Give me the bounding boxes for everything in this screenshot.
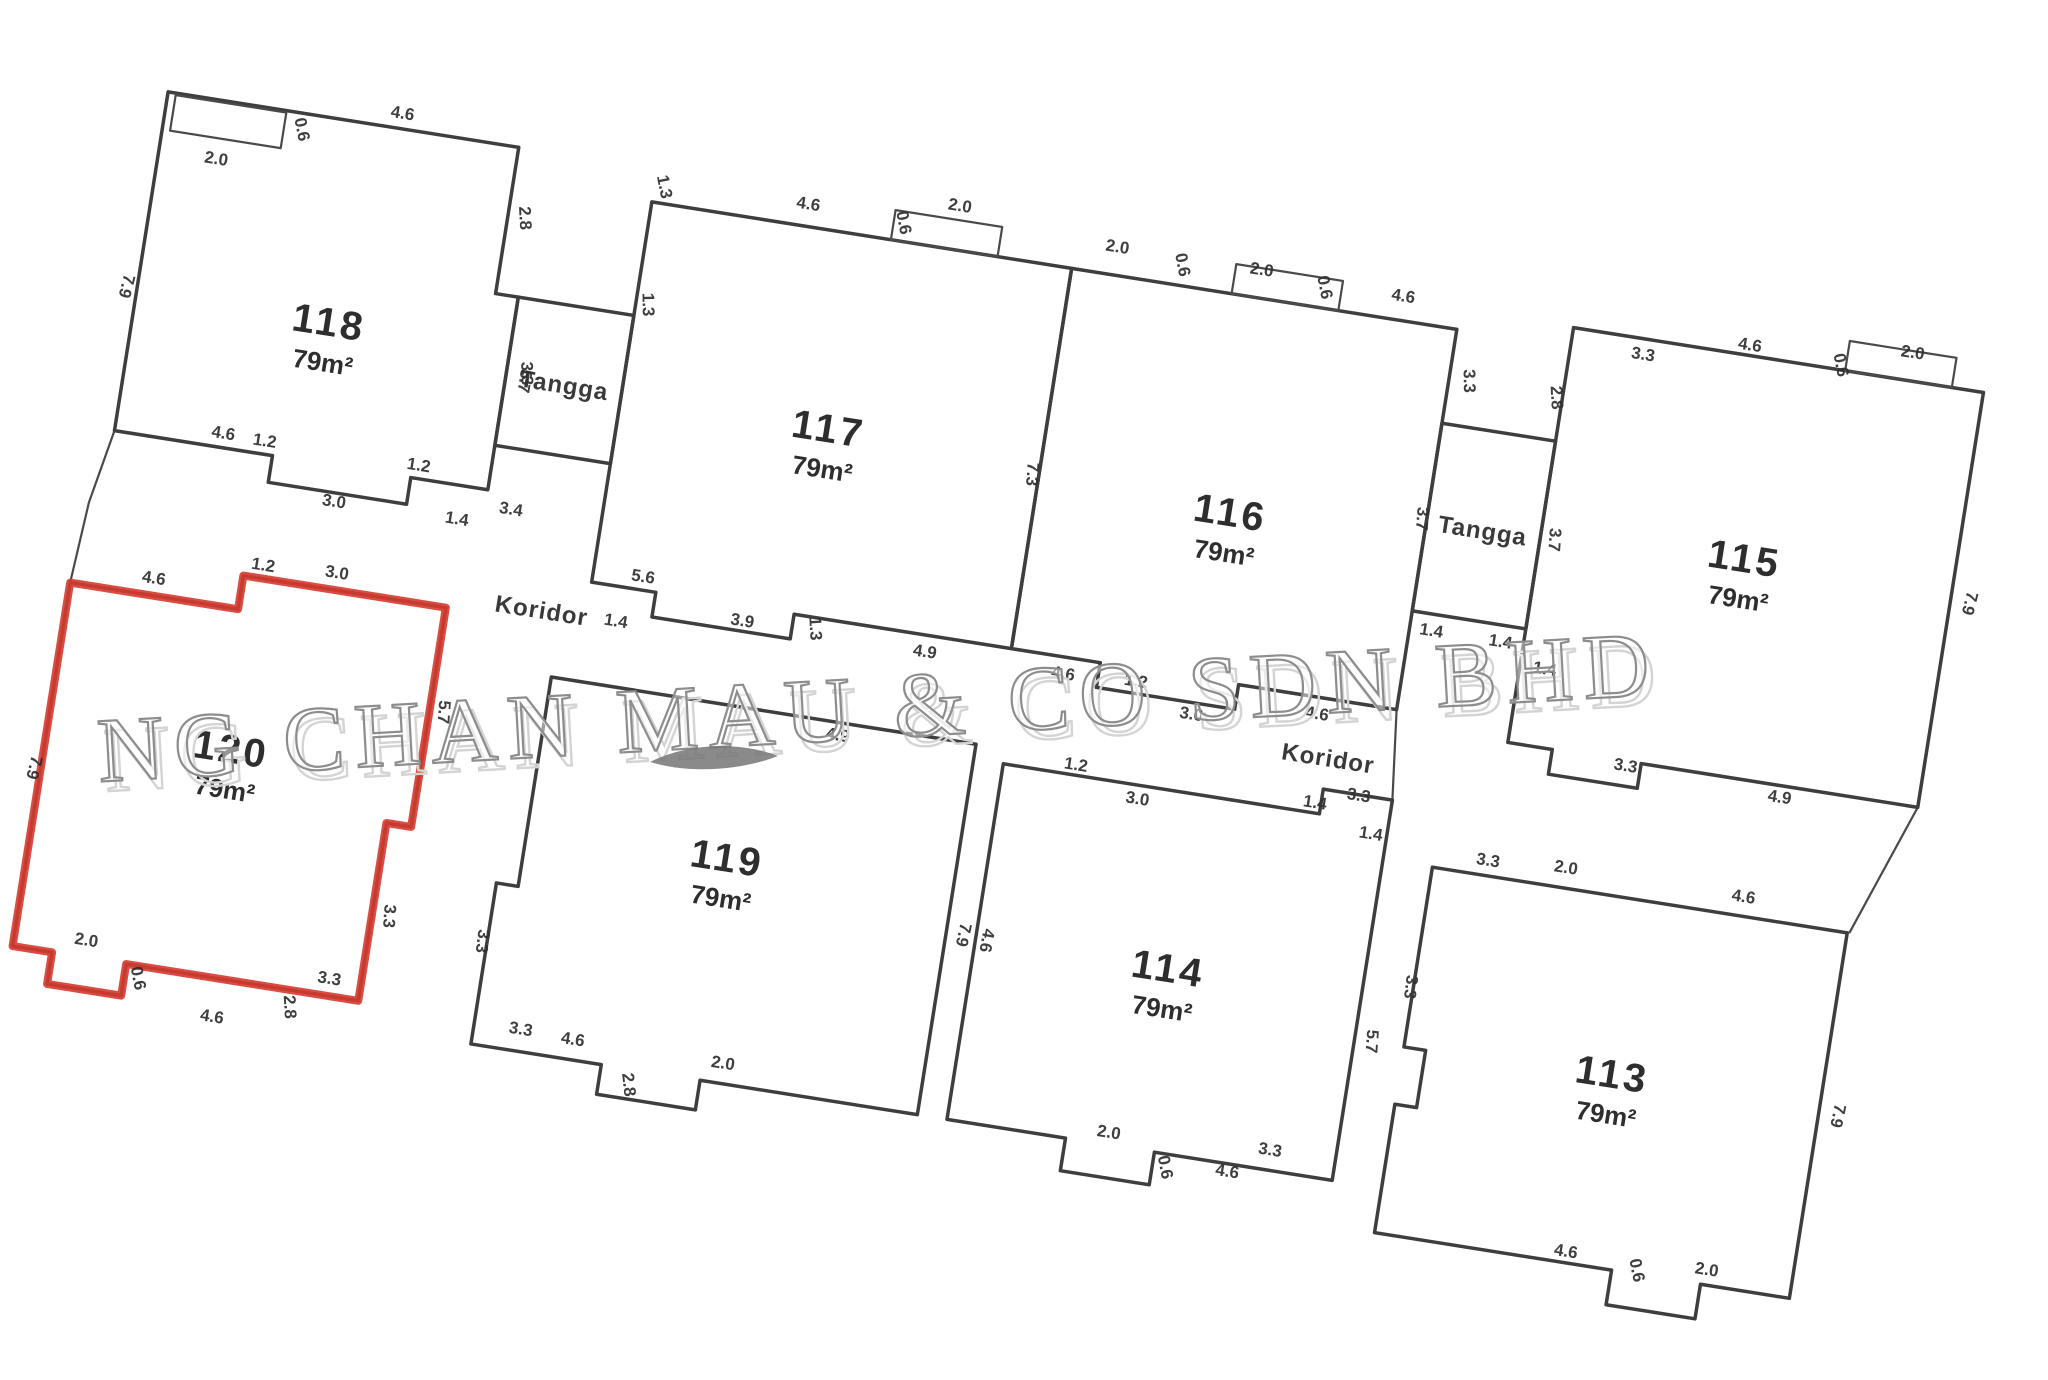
dimension-label: 5.7	[1362, 1029, 1383, 1054]
dimension-label: 1.4	[444, 508, 471, 531]
dimension-label: 2.0	[1900, 341, 1926, 363]
dimension-label: 3.0	[1124, 787, 1150, 809]
dimension-label: 1.2	[252, 430, 278, 452]
dimension-label: 3.3	[316, 967, 342, 989]
dimension-label: 2.8	[280, 995, 300, 1020]
dimension-label: 4.6	[141, 567, 167, 589]
floor-plan-svg: 11879m²11779m²11679m²11579m²11979m²11479…	[0, 0, 2048, 1380]
dimension-label: 4.6	[1214, 1160, 1240, 1182]
dimension-label: 2.0	[1104, 236, 1130, 258]
dimension-label: 4.6	[1553, 1240, 1579, 1262]
dimension-label: 3.7	[1544, 527, 1565, 552]
dimension-label: 3.3	[472, 928, 494, 954]
dimension-label: 3.3	[1613, 754, 1639, 776]
floor-plan-page: 11879m²11779m²11679m²11579m²11979m²11479…	[0, 0, 2048, 1380]
dimension-label: 4.6	[389, 102, 415, 124]
dimension-label: 1.2	[406, 454, 432, 476]
dimension-label: 3.3	[1346, 784, 1372, 806]
dimension-label: 3.3	[379, 904, 400, 929]
dimension-label: 3.3	[1475, 849, 1501, 871]
dimension-label: 2.0	[710, 1052, 736, 1074]
dimension-label: 1.4	[1302, 791, 1329, 814]
dimension-label: 4.6	[560, 1028, 586, 1050]
dimension-label: 2.8	[1547, 385, 1567, 410]
dimension-label: 3.4	[498, 498, 525, 521]
dimension-label: 4.6	[1737, 334, 1763, 356]
dimension-label: 2.0	[1694, 1258, 1720, 1280]
dimension-label: 3.3	[1460, 369, 1479, 393]
dimension-label: 5.7	[514, 368, 536, 394]
dimension-label: 3.3	[508, 1018, 534, 1040]
dimension-label: 3.7	[1412, 506, 1433, 531]
dimension-label: 2.8	[515, 206, 535, 231]
dimension-label: 5.6	[630, 565, 656, 587]
dimension-label: 4.6	[210, 422, 236, 444]
dimension-label: 2.0	[73, 929, 99, 951]
dimension-label: 4.6	[1390, 285, 1416, 307]
dimension-label: 3.0	[324, 561, 350, 583]
dimension-label: 3.9	[729, 609, 755, 631]
dimension-label: 2.0	[1553, 856, 1579, 878]
dimension-label: 2.0	[203, 147, 229, 169]
dimension-label: 3.3	[1630, 343, 1656, 365]
dimension-label: 3.3	[1400, 974, 1422, 1000]
dimension-label: 4.9	[1766, 786, 1792, 808]
dimension-label: 1.3	[638, 293, 657, 317]
dimension-label: 1.2	[250, 554, 276, 576]
dimension-label: 2.0	[947, 194, 973, 216]
dimension-label: 1.4	[1358, 822, 1385, 845]
dimension-label: 3.0	[321, 490, 347, 512]
dimension-label: 4.6	[199, 1005, 225, 1027]
dimension-label: 1.3	[805, 616, 825, 641]
dimension-label: 1.4	[603, 610, 630, 633]
dimension-label: 2.8	[618, 1072, 639, 1097]
dimension-label: 7.3	[1022, 462, 1043, 487]
dimension-label: 2.0	[1249, 258, 1275, 280]
dimension-label: 3.3	[1257, 1139, 1283, 1161]
dimension-label: 4.6	[795, 193, 821, 215]
dimension-label: 4.6	[1730, 885, 1756, 907]
dimension-label: 2.0	[1096, 1121, 1122, 1143]
